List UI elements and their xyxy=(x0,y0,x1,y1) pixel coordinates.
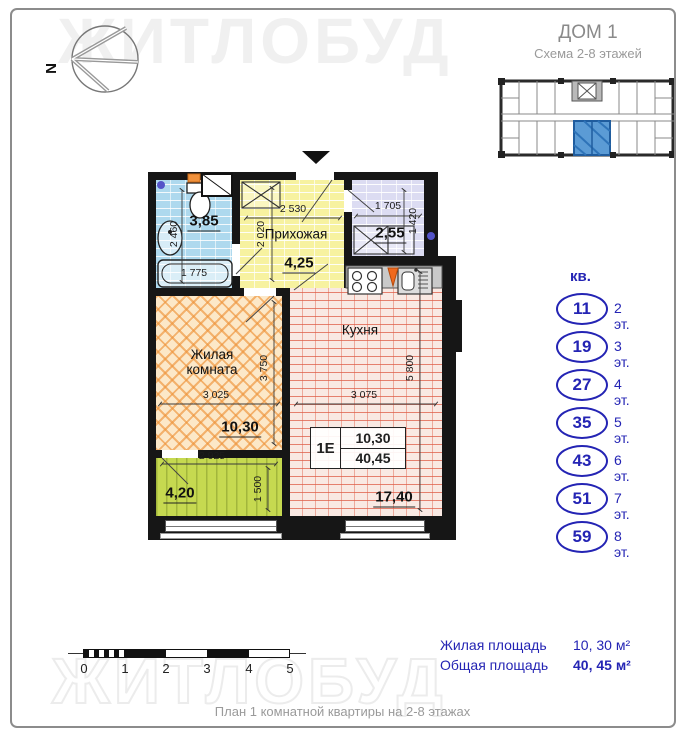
scale-number: 1 xyxy=(121,661,128,676)
info-total-area: 40,45 xyxy=(341,449,405,469)
living-area-label: Жилая площадь xyxy=(440,637,547,653)
living-area-value: 10, 30 м² xyxy=(573,637,630,653)
area-hallway: 4,25 xyxy=(282,255,315,274)
apartment-list-header: кв. xyxy=(570,268,591,285)
dim-living-height: 3 750 xyxy=(258,355,270,381)
area-living: 10,30 xyxy=(219,419,261,438)
dim-kitchen-height: 5 800 xyxy=(404,355,416,381)
scale-number: 4 xyxy=(245,661,252,676)
area-kitchen: 17,40 xyxy=(373,489,415,508)
apartment-number-badge[interactable]: 27 xyxy=(556,369,608,401)
total-area-value: 40, 45 м² xyxy=(573,657,631,673)
highlighted-apartment[interactable] xyxy=(574,121,610,155)
scale-segment xyxy=(166,650,207,657)
floor-label: 2 эт. xyxy=(614,300,630,332)
floor-label: 6 эт. xyxy=(614,452,630,484)
scale-segment xyxy=(84,650,125,657)
floor-label: 3 эт. xyxy=(614,338,630,370)
area-summary: Жилая площадь 10, 30 м² Общая площадь 40… xyxy=(440,637,670,677)
closet-icon xyxy=(242,182,280,208)
stove-icon xyxy=(348,268,382,294)
room-label-hallway: Прихожая xyxy=(265,227,328,242)
scale-number: 0 xyxy=(80,661,87,676)
page: ЖИТЛОБУД ЖИТЛОБУД N ДОМ 1 Схема 2-8 этаж… xyxy=(0,0,685,750)
apartment-number-badge[interactable]: 59 xyxy=(556,521,608,553)
dim-bathroom-height: 2 460 xyxy=(168,221,180,247)
summary-row-total: Общая площадь 40, 45 м² xyxy=(440,657,670,677)
house-title: ДОМ 1 xyxy=(498,22,678,44)
area-bathroom: 3,85 xyxy=(187,213,220,232)
dim-kitchen-width: 3 075 xyxy=(351,389,377,401)
apartment-number-badge[interactable]: 35 xyxy=(556,407,608,439)
page-caption: План 1 комнатной квартиры на 2-8 этажах xyxy=(0,704,685,719)
floor-label: 7 эт. xyxy=(614,490,630,522)
total-area-label: Общая площадь xyxy=(440,657,548,673)
dim-hallway-height: 2 020 xyxy=(255,221,267,247)
floor-label: 8 эт. xyxy=(614,528,630,560)
vent-shaft-icon xyxy=(202,174,232,196)
apartment-type: 1Е xyxy=(311,428,341,468)
room-label-living: Жилая комната xyxy=(173,347,251,377)
compass-north-label: N xyxy=(43,63,60,74)
scale-number: 2 xyxy=(162,661,169,676)
compass-icon xyxy=(38,14,158,109)
dim-living-width: 3 025 xyxy=(203,389,229,401)
apartment-number-badge[interactable]: 19 xyxy=(556,331,608,363)
apartment-number-badge[interactable]: 11 xyxy=(556,293,608,325)
area-balcony: 4,20 xyxy=(163,485,196,504)
floor-plan: 2 460 3,85 1 775 2 530 Прихожая 4,25 2 0… xyxy=(148,172,456,540)
apartment-info-box: 1Е 10,30 40,45 xyxy=(310,427,406,469)
apartment-number-badge[interactable]: 43 xyxy=(556,445,608,477)
kitchen-sink-icon xyxy=(398,268,432,294)
entrance-arrow-icon xyxy=(302,151,330,164)
towel-radiator-icon xyxy=(188,174,200,182)
floor-label: 5 эт. xyxy=(614,414,630,446)
info-living-area: 10,30 xyxy=(341,428,405,449)
scale-segment xyxy=(208,650,249,657)
dim-bathtub-width: 1 775 xyxy=(181,267,207,279)
dim-balcony-width: 2 925 xyxy=(199,450,225,462)
scale-segment xyxy=(125,650,166,657)
scale-number: 5 xyxy=(286,661,293,676)
dim-hallway-width: 2 530 xyxy=(280,203,306,215)
dim-balcony-height: 1 500 xyxy=(252,476,264,502)
floor-label: 4 эт. xyxy=(614,376,630,408)
building-floor-schematic xyxy=(498,74,676,160)
scale-segment xyxy=(249,650,289,657)
scale-bar xyxy=(83,649,290,658)
area-storage: 2,55 xyxy=(373,225,406,244)
riser-dot xyxy=(157,181,165,189)
scale-number: 3 xyxy=(203,661,210,676)
riser-dot xyxy=(427,232,435,240)
apartment-number-badge[interactable]: 51 xyxy=(556,483,608,515)
room-label-kitchen: Кухня xyxy=(342,323,378,338)
summary-row-living: Жилая площадь 10, 30 м² xyxy=(440,637,670,657)
scheme-subtitle: Схема 2-8 этажей xyxy=(488,46,685,61)
dim-storage-width: 1 705 xyxy=(375,200,401,212)
dim-storage-height: 1 420 xyxy=(407,208,419,234)
